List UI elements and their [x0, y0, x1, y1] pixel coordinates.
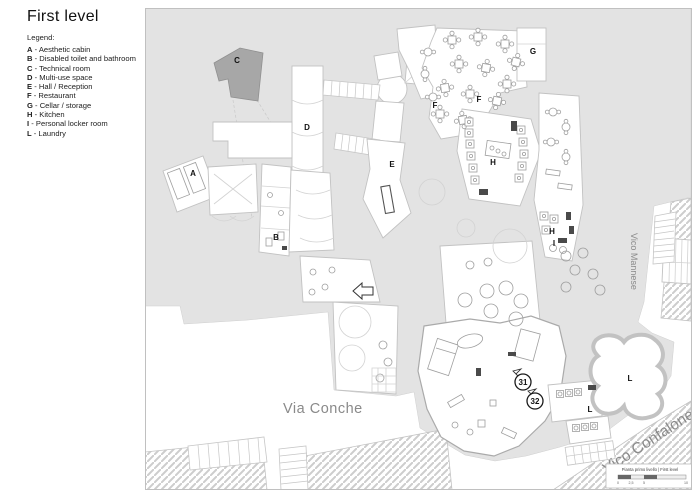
- room-label-b: B: [273, 233, 279, 242]
- legend-panel: First level Legend: A - Aesthetic cabin …: [27, 8, 145, 138]
- room-label-e: E: [389, 160, 395, 169]
- street-label-via-conche: Via Conche: [283, 401, 363, 417]
- room-label-i: I: [553, 239, 555, 248]
- room-label-d: D: [304, 123, 310, 132]
- floor-plan-page: First level Legend: A - Aesthetic cabin …: [0, 0, 700, 495]
- legend-list: A - Aesthetic cabin B - Disabled toilet …: [27, 45, 145, 138]
- page-title: First level: [27, 8, 145, 26]
- svg-text:2,5: 2,5: [629, 481, 634, 485]
- room-label-f1: F: [433, 101, 438, 110]
- street-label-vico-mannese: Vico Mannese: [629, 233, 639, 290]
- svg-text:5: 5: [643, 481, 645, 485]
- room-label-a: A: [190, 169, 196, 178]
- legend-item-d: D - Multi-use space: [27, 73, 145, 82]
- room-label-f2: F: [477, 95, 482, 104]
- legend-item-a: A - Aesthetic cabin: [27, 45, 145, 54]
- svg-text:32: 32: [531, 397, 540, 406]
- legend-item-h: H - Kitchen: [27, 110, 145, 119]
- svg-text:0: 0: [617, 481, 619, 485]
- legend-item-f: F - Restaurant: [27, 91, 145, 100]
- floor-plan-canvas: 31 32 A B C D E F F G H H I L: [145, 8, 692, 490]
- legend-item-b: B - Disabled toilet and bathroom: [27, 54, 145, 63]
- legend-item-i: I - Personal locker room: [27, 119, 145, 128]
- street-stairs-mannese: [653, 212, 676, 264]
- legend-item-g: G - Cellar / storage: [27, 101, 145, 110]
- room-label-h1: H: [490, 158, 496, 167]
- room-label-h2: H: [549, 227, 555, 236]
- svg-text:10: 10: [684, 481, 688, 485]
- legend-heading: Legend:: [27, 33, 145, 42]
- titleblock: Pianta primo livello | First level 0 2,5…: [606, 464, 692, 488]
- svg-text:31: 31: [519, 378, 528, 387]
- room-label-c: C: [234, 56, 240, 65]
- room-label-l1: L: [628, 374, 633, 383]
- room-label-l2: L: [588, 405, 593, 414]
- legend-item-c: C - Technical room: [27, 64, 145, 73]
- legend-item-e: E - Hall / Reception: [27, 82, 145, 91]
- titleblock-caption: Pianta primo livello | First level: [622, 467, 679, 472]
- room-label-g: G: [530, 47, 536, 56]
- legend-item-l: L - Laundry: [27, 129, 145, 138]
